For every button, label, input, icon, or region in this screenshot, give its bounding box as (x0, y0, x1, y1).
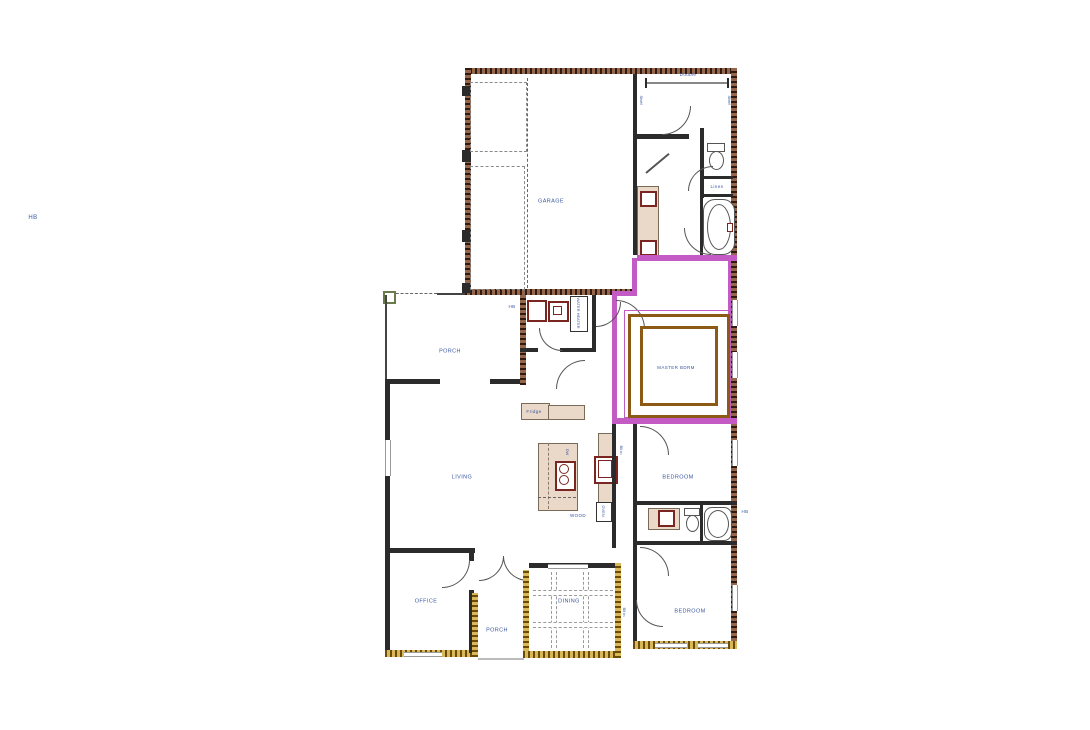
wall-porch-south-left (385, 379, 440, 384)
wall-dining-west (523, 570, 529, 658)
door-arc-closet (662, 106, 691, 135)
bath2-sink (658, 510, 675, 527)
room-label-dining: DINING (558, 599, 580, 605)
garage-centerline (527, 78, 528, 288)
door-arc-tub-room (684, 228, 711, 255)
window (548, 564, 588, 569)
dining-ceiling-beam (533, 622, 613, 628)
toilet-bowl (686, 515, 699, 532)
wall-linen-south (700, 194, 733, 197)
wall-bath2-south (633, 541, 737, 545)
label-closet-shelf-left: Shelf (639, 95, 643, 104)
wall-bath2-north (633, 501, 737, 505)
door-arc-office (442, 560, 470, 588)
island-divider (548, 443, 549, 509)
wall-dining-south (523, 651, 621, 658)
door-arc-bedroom-rear-closet (636, 600, 663, 627)
label-wood-floor: WOOD (570, 514, 586, 519)
room-label-garage: GARAGE (538, 199, 564, 205)
label-linen: Linen (710, 185, 723, 190)
wall-porch-south-right (490, 379, 520, 384)
closet-rod (645, 82, 729, 84)
dining-ceiling-beam (533, 590, 613, 596)
window (655, 643, 687, 648)
room-label-back-porch: PORCH (439, 349, 461, 355)
door-arc-utility (539, 328, 562, 351)
garage-ceiling-dashed-outline (470, 82, 527, 152)
door-arc-hall (556, 360, 585, 389)
label-dishwasher: DW (565, 449, 569, 456)
range-inner (598, 460, 612, 478)
door-arc-bedroom-rear (640, 547, 669, 576)
vanity-sink (640, 240, 657, 256)
label-hose-bib-far-left: HB (28, 215, 37, 221)
door-arc-entry-left (479, 556, 504, 581)
wall-kitchen-east (612, 424, 616, 548)
kitchen-counter (548, 405, 585, 420)
dryer-door (553, 306, 562, 315)
window (732, 585, 738, 611)
room-label-bedroom-mid: BEDROOM (662, 475, 693, 481)
label-hose-bib-right: HB (741, 510, 748, 515)
window (732, 440, 738, 466)
label-fridge: Fridge (526, 410, 541, 415)
island-divider (538, 497, 576, 498)
wall-master-south (612, 418, 737, 424)
label-water-heater: WATER HEATER (576, 297, 580, 328)
wall-linen-north (700, 176, 733, 179)
vanity-sink (640, 191, 657, 207)
room-label-living: LIVING (452, 475, 472, 481)
window (732, 352, 738, 378)
door-arc-bedroom-mid (640, 426, 669, 455)
wall-dining-east (615, 563, 621, 658)
label-closet-shelf-right: Shelf (727, 95, 731, 104)
wall-utility-south-right (560, 348, 594, 352)
window (385, 440, 391, 476)
porch-step (478, 658, 524, 660)
window (698, 643, 728, 648)
label-double-closet: Double (680, 73, 697, 78)
window (732, 300, 738, 326)
label-built-in-rear: Blt in (622, 608, 626, 617)
dining-ceiling-beam (551, 572, 557, 648)
door-leaf-angled (645, 153, 669, 174)
room-label-entry-porch: PORCH (486, 628, 508, 634)
shower-tub-basin (707, 510, 729, 538)
closet-rod-bracket (645, 78, 647, 88)
wall-master-north (637, 255, 737, 261)
sink-basin (559, 475, 569, 485)
label-built-in-mid: Blt in (619, 446, 623, 455)
wall-bedroom-wing-west (633, 424, 637, 648)
porch-edge-dashed (391, 293, 437, 294)
sink-basin (559, 464, 569, 474)
floorplan-canvas: GARAGE Double Shelf Shelf Linen MASTER B… (0, 0, 1090, 730)
window (404, 652, 442, 657)
room-label-bedroom-rear: BEDROOM (674, 609, 705, 615)
washer (527, 300, 547, 322)
wall-office-north (385, 548, 475, 553)
wall-bath2-divider (700, 505, 703, 541)
label-oven: OVEN (601, 505, 605, 516)
tub-faucet (727, 223, 733, 232)
garage-ceiling-dashed-outline (470, 166, 525, 290)
wall-office-west (385, 548, 390, 657)
label-hose-bib-porch: HB (508, 305, 515, 310)
room-label-master-bedroom: MASTER BDRM (657, 366, 695, 371)
wall-utility-south-left (520, 348, 538, 352)
closet-rod-bracket (727, 78, 729, 88)
porch-edge (437, 293, 465, 295)
wall-entry-porch-west (472, 593, 478, 657)
dining-ceiling-beam (583, 572, 589, 648)
room-label-office: OFFICE (415, 599, 438, 605)
wall-utility-west (520, 295, 526, 385)
wall-porch-west (385, 295, 387, 383)
